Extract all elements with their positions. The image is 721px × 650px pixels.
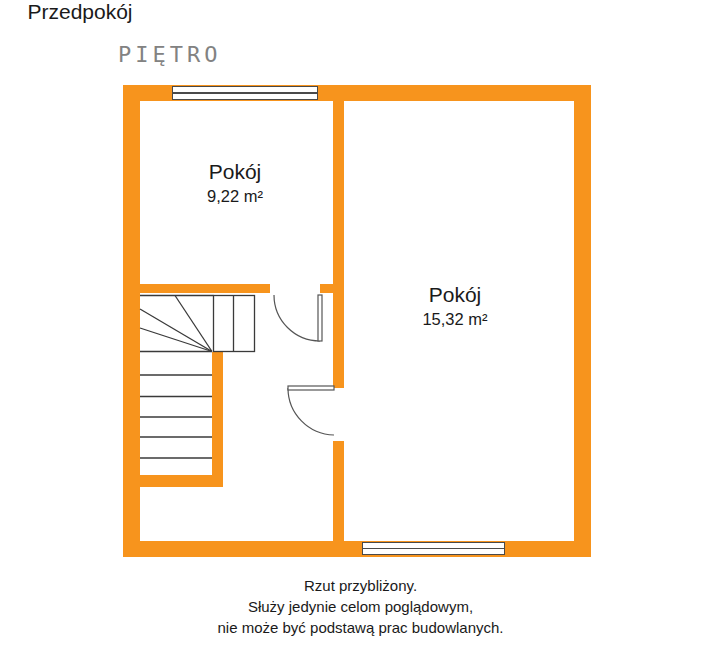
interior-wall-room1-stub (320, 284, 333, 293)
door-room1-swing-arc (274, 295, 320, 341)
outer-wall-right (574, 85, 591, 557)
room1-name: Pokój (155, 160, 315, 184)
disclaimer-line-2: Służy jedynie celom poglądowym, (0, 596, 721, 617)
hallway-label: Przedpokój (0, 0, 160, 24)
stair-upper-treads (214, 296, 255, 352)
window-bottom (362, 542, 505, 555)
door-room1 (274, 295, 322, 341)
room2-label: Pokój 15,32 m² (375, 283, 535, 329)
room1-label: Pokój 9,22 m² (155, 160, 315, 206)
interior-wall-center-lower (333, 441, 344, 541)
door-room2-leaf (288, 386, 334, 390)
door-room2 (288, 386, 334, 435)
door-room2-swing-arc (288, 388, 334, 435)
disclaimer-line-1: Rzut przybliżony. (0, 575, 721, 596)
window-top-pane-line (173, 92, 317, 94)
room2-area: 15,32 m² (375, 309, 535, 329)
floor-title: PIĘTRO (118, 42, 221, 67)
interior-wall-room1-left (140, 284, 270, 293)
disclaimer: Rzut przybliżony. Służy jedynie celom po… (0, 575, 721, 638)
stair-enclosure-wall-bottom (135, 475, 223, 487)
room1-area: 9,22 m² (155, 186, 315, 206)
staircase (140, 296, 255, 459)
stair-enclosure-wall-right (212, 352, 223, 487)
interior-wall-center-upper (333, 101, 344, 388)
floorplan-canvas: PIĘTRO (0, 0, 721, 650)
outer-wall-bottom (123, 541, 591, 557)
window-bottom-pane-line (363, 548, 504, 550)
disclaimer-line-3: nie może być podstawą prac budowlanych. (0, 617, 721, 638)
door-room1-leaf (318, 295, 322, 341)
window-top (172, 86, 318, 100)
room2-name: Pokój (375, 283, 535, 307)
